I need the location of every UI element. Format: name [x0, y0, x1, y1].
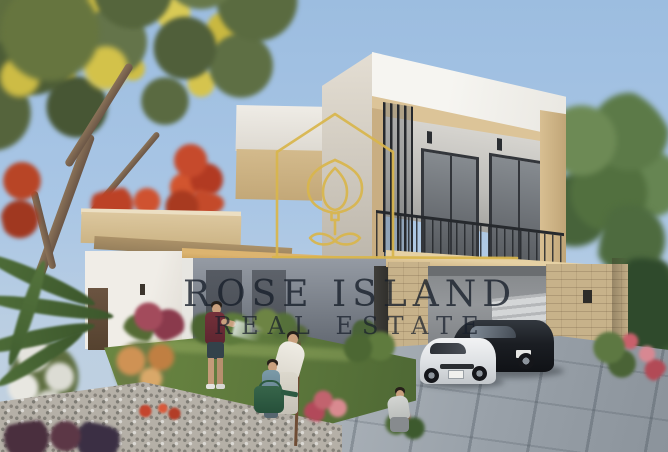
watering-can [254, 386, 284, 413]
man-leg [217, 358, 223, 385]
man-shoe [206, 384, 215, 389]
logo-rose-right-petal [335, 160, 362, 213]
logo-house-outline [277, 114, 393, 257]
logo-leaf-right [335, 234, 360, 245]
wheel [518, 353, 534, 369]
right-flower-bed [584, 322, 668, 386]
villa-render-image: ROSE ISLAND REAL ESTATE [0, 0, 668, 452]
man-shoe [216, 384, 225, 389]
man-leg [208, 358, 214, 385]
watermark-brand-tagline: REAL ESTATE [214, 312, 488, 340]
license-plate [448, 370, 464, 379]
watermark-brand-name: ROSE ISLAND [183, 274, 517, 315]
logo-leaf-left [310, 234, 335, 245]
rose-island-house-logo-icon [255, 100, 525, 265]
gardener-legs [390, 417, 409, 432]
logo-ground-line [273, 257, 517, 258]
white-sports-car [420, 338, 496, 384]
wall-lamp [583, 290, 592, 303]
small-red-flowers [128, 398, 186, 424]
wall-sconce [140, 284, 145, 295]
logo-rose-inner-petal [323, 168, 347, 210]
front-grille [440, 364, 474, 369]
man-shorts [207, 342, 224, 359]
logo-rose-left-petal [308, 160, 335, 213]
windshield [430, 343, 466, 354]
wheel [424, 368, 439, 383]
dark-foliage-left [0, 420, 124, 452]
wheel [472, 366, 487, 381]
